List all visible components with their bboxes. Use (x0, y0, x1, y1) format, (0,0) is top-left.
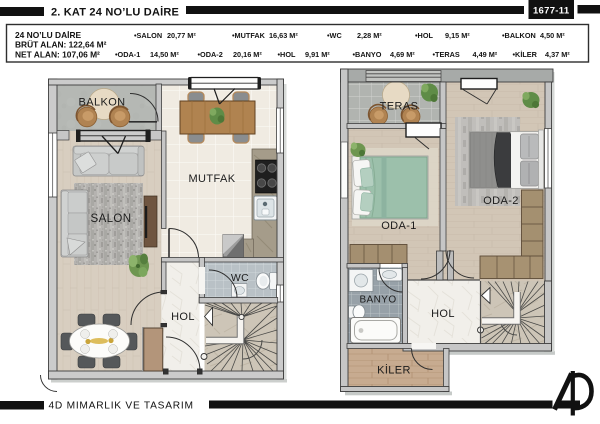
svg-text:KİLER: KİLER (377, 364, 411, 377)
svg-text:MUTFAK: MUTFAK (188, 173, 235, 185)
svg-text:4,37 M²: 4,37 M² (545, 50, 570, 59)
svg-text:1677-11: 1677-11 (533, 5, 570, 16)
svg-text:20,77 M²: 20,77 M² (167, 31, 196, 40)
svg-text:2,28 M²: 2,28 M² (357, 31, 382, 40)
svg-text:BALKON: BALKON (78, 97, 125, 109)
svg-text:WC: WC (231, 272, 249, 284)
svg-text:HOL: HOL (171, 311, 195, 323)
svg-text:ODA-2: ODA-2 (483, 195, 519, 207)
svg-text:TERAS: TERAS (380, 101, 419, 113)
svg-text:BANYO: BANYO (359, 295, 396, 306)
svg-text:•ODA-2: •ODA-2 (198, 50, 223, 59)
svg-text:•TERAS: •TERAS (433, 50, 460, 59)
svg-text:SALON: SALON (91, 213, 132, 225)
svg-text:•KİLER: •KİLER (513, 50, 538, 59)
svg-text:•SALON: •SALON (134, 31, 162, 40)
svg-text:4,50 M²: 4,50 M² (540, 31, 565, 40)
svg-text:2. KAT 24 NO’LU DAİRE: 2. KAT 24 NO’LU DAİRE (51, 6, 179, 19)
svg-text:ODA-1: ODA-1 (381, 220, 417, 232)
svg-text:•BALKON: •BALKON (502, 31, 536, 40)
svg-text:9,15 M²: 9,15 M² (445, 31, 470, 40)
svg-text:4D MIMARLIK VE TASARIM: 4D MIMARLIK VE TASARIM (49, 401, 194, 412)
svg-text:4,69 M²: 4,69 M² (390, 50, 415, 59)
svg-text:14,50 M²: 14,50 M² (150, 50, 179, 59)
svg-text:•BANYO: •BANYO (353, 50, 382, 59)
svg-text:24 NO’LU DAİRE: 24 NO’LU DAİRE (15, 30, 81, 40)
svg-text:20,16 M²: 20,16 M² (233, 50, 262, 59)
svg-text:•MUTFAK: •MUTFAK (232, 31, 266, 40)
svg-text:•HOL: •HOL (415, 31, 433, 40)
svg-text:NET ALAN: 107,06 M²: NET ALAN: 107,06 M² (15, 50, 100, 60)
svg-text:•ODA-1: •ODA-1 (115, 50, 140, 59)
svg-text:HOL: HOL (431, 308, 455, 320)
svg-text:9,91 M²: 9,91 M² (305, 50, 330, 59)
svg-text:4,49 M²: 4,49 M² (473, 50, 498, 59)
svg-text:•WC: •WC (327, 31, 342, 40)
svg-text:16,63 M²: 16,63 M² (269, 31, 298, 40)
svg-text:•HOL: •HOL (278, 50, 296, 59)
svg-text:BRÜT ALAN: 122,64 M²: BRÜT ALAN: 122,64 M² (15, 40, 107, 50)
